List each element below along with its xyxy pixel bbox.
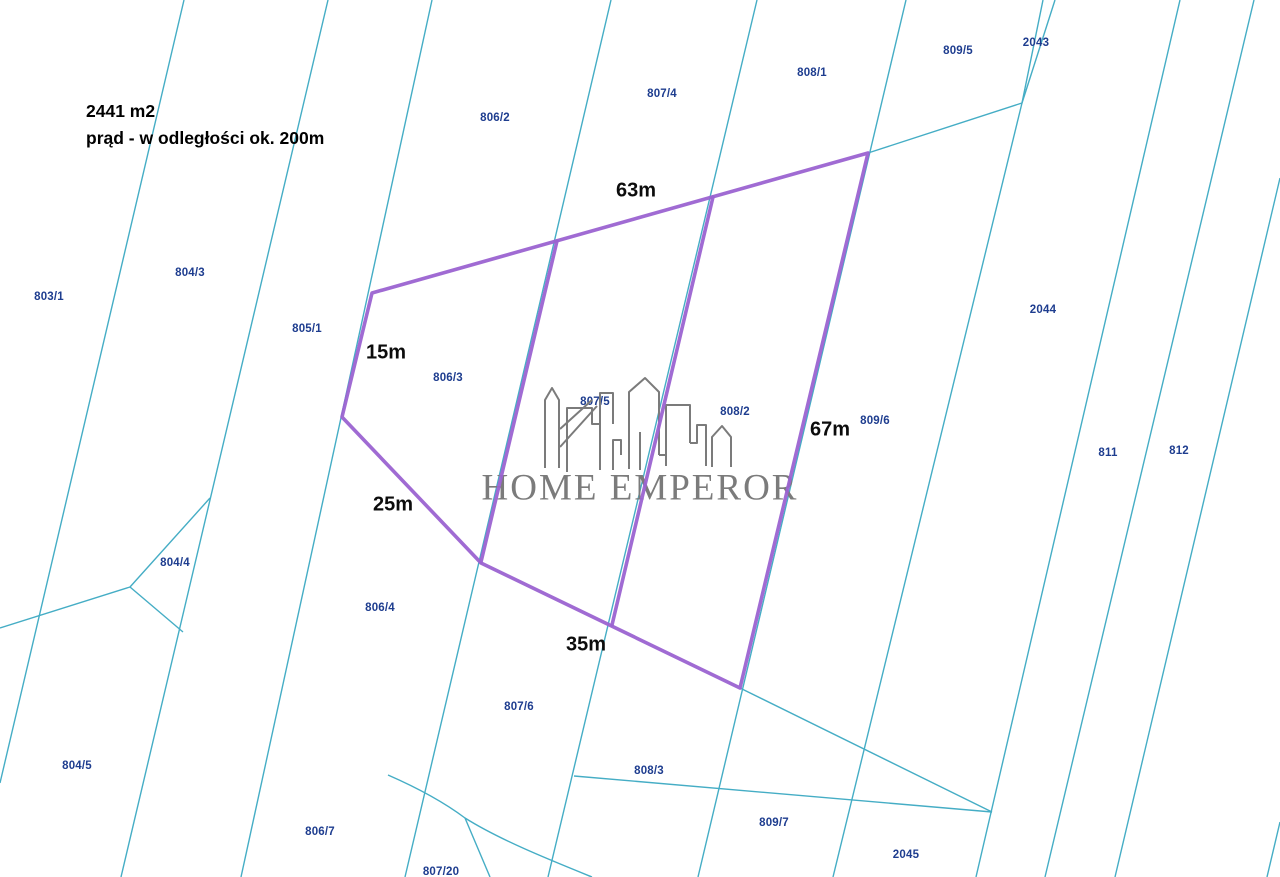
boundary-line <box>574 776 992 812</box>
logo-skyline-icon <box>545 378 731 472</box>
parcel-label-2045: 2045 <box>893 849 919 861</box>
cadastral-map-viewport[interactable]: 803/1804/3805/1806/2807/4808/1809/520432… <box>0 0 1280 877</box>
boundary-line <box>1267 822 1280 877</box>
parcel-label-809/5: 809/5 <box>943 45 973 57</box>
parcel-label-805/1: 805/1 <box>292 323 322 335</box>
selected-parcel-divider <box>481 241 557 562</box>
boundary-line <box>465 818 490 877</box>
parcel-label-2043: 2043 <box>1023 37 1049 49</box>
annotation-area-text: 2441 m2 <box>86 98 324 125</box>
parcel-label-804/4: 804/4 <box>160 557 190 569</box>
parcel-label-806/3: 806/3 <box>433 372 463 384</box>
parcel-label-807/20: 807/20 <box>423 866 459 877</box>
parcel-label-807/4: 807/4 <box>647 88 677 100</box>
boundary-line <box>548 0 757 877</box>
listing-annotation: 2441 m2 prąd - w odległości ok. 200m <box>86 98 324 152</box>
dimension-label-67m: 67m <box>810 419 850 442</box>
parcel-label-807/5: 807/5 <box>580 396 610 408</box>
parcel-label-806/7: 806/7 <box>305 826 335 838</box>
logo-text: HOME EMPEROR <box>482 467 799 510</box>
boundary-line <box>976 0 1180 877</box>
dimension-label-25m: 25m <box>373 494 413 517</box>
boundary-line <box>0 587 130 628</box>
parcel-label-804/5: 804/5 <box>62 760 92 772</box>
parcel-label-807/6: 807/6 <box>504 701 534 713</box>
parcel-label-808/1: 808/1 <box>797 67 827 79</box>
dimension-label-35m: 35m <box>566 634 606 657</box>
parcel-label-809/6: 809/6 <box>860 415 890 427</box>
parcel-label-808/2: 808/2 <box>720 406 750 418</box>
parcel-label-811: 811 <box>1098 447 1117 459</box>
boundary-line <box>1045 0 1254 877</box>
parcel-label-812: 812 <box>1169 445 1189 457</box>
boundary-line <box>405 0 611 877</box>
selected-parcel-boundary <box>342 153 868 688</box>
boundary-line <box>698 0 906 877</box>
selected-parcel-divider <box>612 197 713 625</box>
boundary-line <box>130 498 210 587</box>
parcel-label-806/4: 806/4 <box>365 602 395 614</box>
parcel-label-806/2: 806/2 <box>480 112 510 124</box>
parcel-label-808/3: 808/3 <box>634 765 664 777</box>
dimension-label-63m: 63m <box>616 180 656 203</box>
boundary-line <box>1022 0 1055 103</box>
parcel-label-803/1: 803/1 <box>34 291 64 303</box>
dimension-label-15m: 15m <box>366 342 406 365</box>
selected-parcel-outline <box>342 153 868 688</box>
boundary-line <box>833 103 1022 877</box>
parcel-label-804/3: 804/3 <box>175 267 205 279</box>
boundary-line <box>130 587 183 632</box>
parcel-label-2044: 2044 <box>1030 304 1056 316</box>
annotation-utilities-text: prąd - w odległości ok. 200m <box>86 125 324 152</box>
boundary-line <box>740 688 992 812</box>
boundary-line <box>868 103 1022 153</box>
parcel-label-809/7: 809/7 <box>759 817 789 829</box>
boundary-line <box>1022 0 1043 103</box>
boundary-line <box>1115 178 1280 877</box>
boundary-line <box>388 775 592 877</box>
